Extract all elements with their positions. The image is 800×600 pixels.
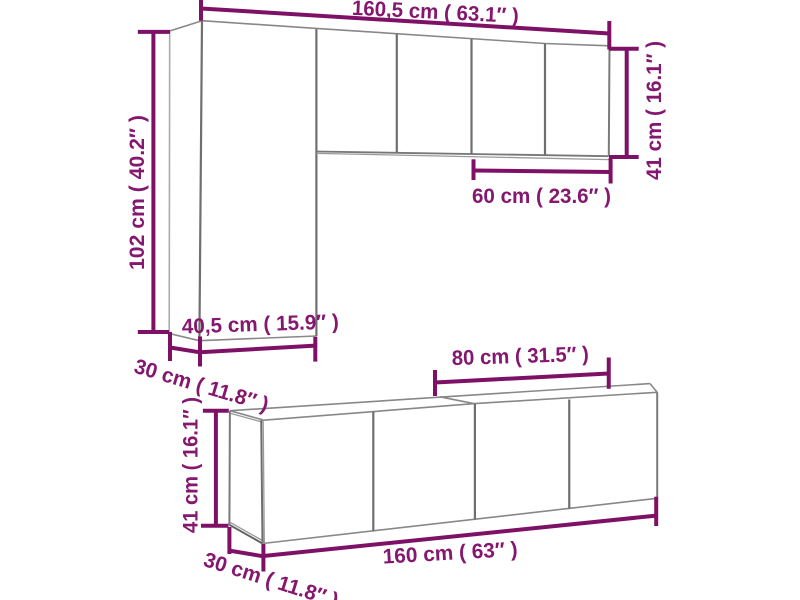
svg-text:80 cm ( 31.5″ ): 80 cm ( 31.5″ ) [451,343,589,370]
svg-text:41 cm ( 16.1″ ): 41 cm ( 16.1″ ) [180,397,203,533]
svg-text:60 cm ( 23.6″ ): 60 cm ( 23.6″ ) [472,185,611,208]
svg-text:41 cm ( 16.1″ ): 41 cm ( 16.1″ ) [643,41,666,180]
svg-text:102 cm ( 40.2″ ): 102 cm ( 40.2″ ) [126,115,149,270]
